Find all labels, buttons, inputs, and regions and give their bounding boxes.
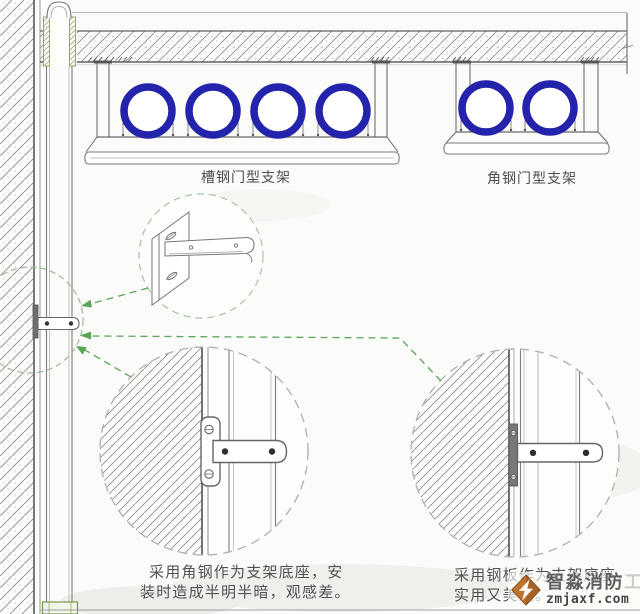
note-left-line1: 采用角钢作为支架底座，安 [140,562,351,582]
watermark-brand-suffix: 工程 [624,572,640,593]
detail-plate-base [411,349,619,558]
label-angle-bracket: 角钢门型支架 [487,168,577,188]
watermark-url: zmjaxf.com [546,593,640,607]
pipe-sleeve-left [44,17,50,66]
pipe-sleeve-right [70,17,76,66]
label-channel-bracket: 槽钢门型支架 [201,167,291,187]
watermark-brand-row: 智淼消防工程 [546,574,640,593]
zhimiao-logo-icon [511,573,541,607]
note-left-line2: 装时造成半明半暗，观感差。 [140,582,351,602]
pipe-ring [254,87,302,135]
detail-bracket-3d [139,194,263,318]
diagram-canvas [0,0,640,614]
wall-bracket-base [33,305,38,338]
pipe-ring [124,87,172,135]
pipe-elbow-fitting [43,602,78,614]
diagram-page: 槽钢门型支架 角钢门型支架 采用角钢作为支架底座，安 装时造成半明半暗，观感差。… [0,0,640,614]
pipe-ring [319,87,367,135]
note-left: 采用角钢作为支架底座，安 装时造成半明半暗，观感差。 [140,562,351,602]
watermark-text: 智淼消防工程 zmjaxf.com [546,574,640,607]
pipe-ring [526,84,574,132]
pipe-cap [47,2,71,18]
watermark-brand: 智淼消防 [546,572,624,593]
pipe-ring [462,84,510,132]
angle-tray [444,143,609,154]
pipe-ring [189,87,237,135]
watermark: 智淼消防工程 zmjaxf.com [508,572,640,608]
detail-angle-base [99,346,308,557]
